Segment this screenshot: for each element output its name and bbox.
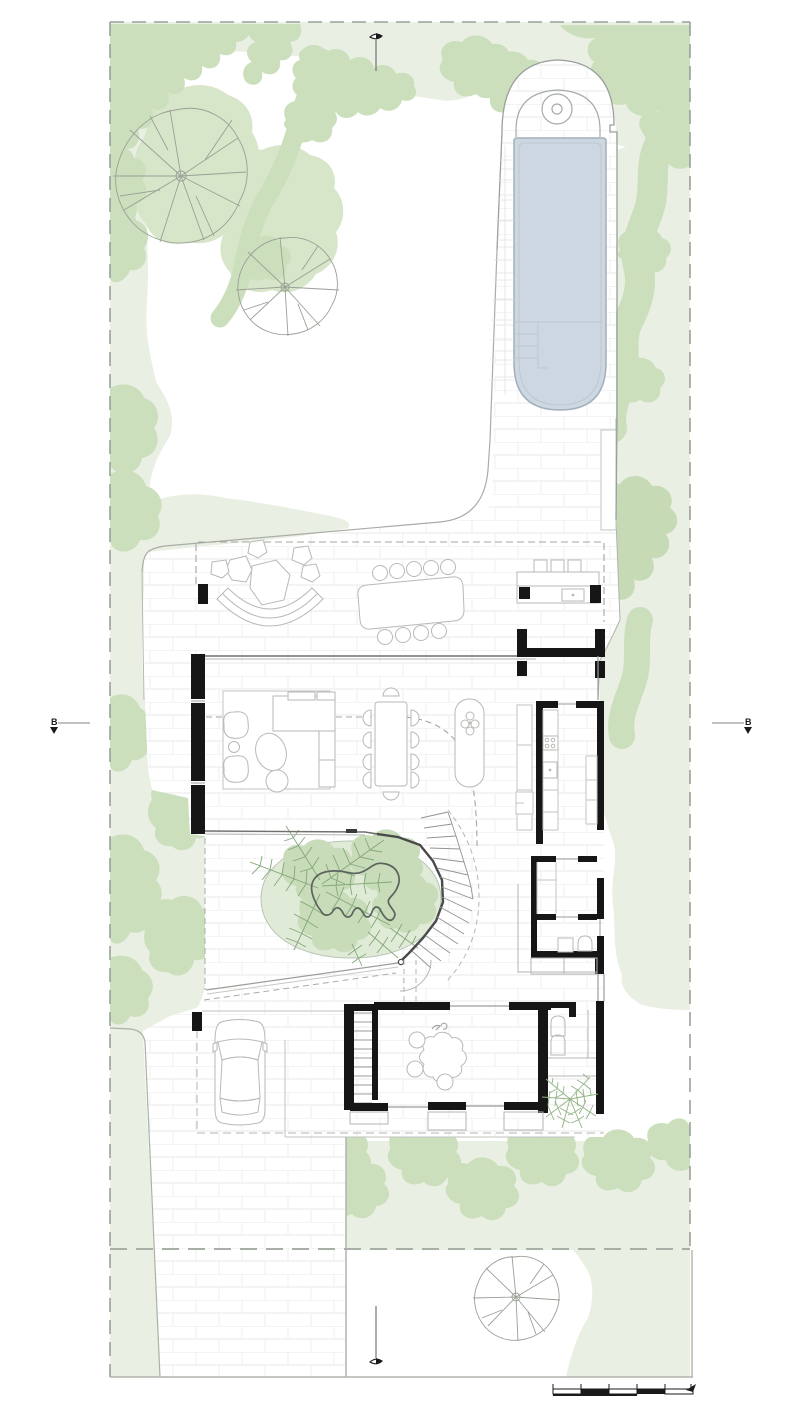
svg-text:B: B — [51, 717, 58, 727]
svg-text:B: B — [745, 717, 752, 727]
